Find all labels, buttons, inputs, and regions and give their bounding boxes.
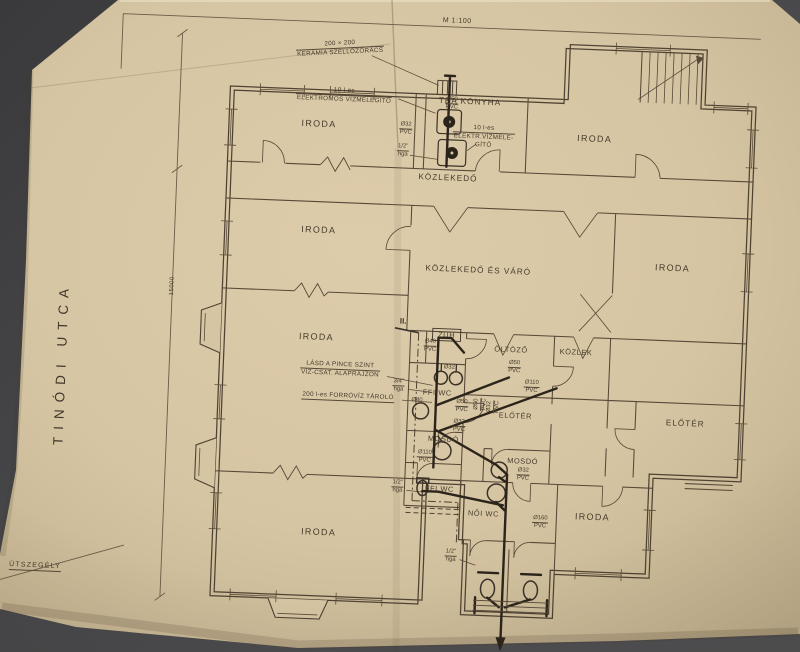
pl-mosdo1-32-material: PVC bbox=[453, 427, 465, 433]
room-iroda-top-right: IRODA bbox=[577, 133, 612, 144]
pl-mosdo2-32-material: PVC bbox=[517, 475, 529, 481]
room-eloter-right: ELŐTÉR bbox=[666, 418, 705, 429]
pl-mosdo1-110-material: PVC bbox=[418, 457, 430, 463]
pl-ffi-50-material: PVC bbox=[455, 407, 467, 413]
room-iroda-bottom-right: IRODA bbox=[575, 511, 610, 522]
pl-wc-hga: 1/2"hga bbox=[444, 548, 457, 564]
ann-forroviz: 200 l-es FORRÓVÍZ TÁROLÓ bbox=[301, 391, 395, 404]
pl-noi-160-material: PVC bbox=[534, 523, 546, 529]
pl-kozlek-110: Ø110PVC bbox=[523, 379, 540, 395]
pl-ffi-50: Ø50PVC bbox=[455, 399, 469, 415]
pl-tarolo-hga: 3/4"hga bbox=[392, 378, 405, 394]
pl-ffi-urinal-32-diameter: Ø32 bbox=[443, 364, 456, 372]
ann-vent: 200 × 200KERÁMIA SZELLŐZŐRÁCS bbox=[296, 38, 385, 59]
ann-lasd: LÁSD A PINCE SZINTVÍZ-CSAT. ALAPRAJZON bbox=[300, 359, 381, 380]
pl-noi-160: Ø160PVC bbox=[532, 515, 549, 531]
pl-ffi2-hga-material: hga bbox=[392, 487, 402, 493]
room-ffi-wc-upper: FFI WC bbox=[423, 387, 452, 397]
pl-tea-32: Ø32PVC bbox=[399, 121, 413, 137]
label-layer: TINÓDI UTCA ÚTSZEGÉLY M 1:100 15000 II. … bbox=[0, 0, 800, 652]
pl-tea-sink-material: PVC bbox=[446, 104, 458, 110]
ann-heater-left: 10 l-esELEKTROMOS VÍZMELEGÍTŐ bbox=[296, 85, 393, 106]
pl-mosdo1-110: Ø110PVC bbox=[416, 449, 433, 465]
pl-ffi-sink-40: Ø40 bbox=[410, 397, 423, 405]
ann-heater-right: 10 l-esELEKTR.VÍZMELE-GÍTŐ bbox=[452, 123, 515, 151]
pl-mosdo1-32: Ø32PVC bbox=[452, 419, 466, 435]
pl-oltozo-50: Ø50PVC bbox=[508, 360, 522, 376]
dimension-label: 15000 bbox=[169, 276, 176, 295]
room-kozlekedo: KÖZLEKEDŐ bbox=[418, 172, 477, 183]
room-mosdo-1: MOSDÓ bbox=[428, 434, 459, 444]
room-iroda-top-left: IRODA bbox=[301, 118, 336, 129]
pl-tea-sink: Ø50PVC bbox=[445, 96, 459, 112]
room-iroda-mid-left: IRODA bbox=[301, 224, 336, 235]
pl-ffi2-hga: 1/2"hga bbox=[391, 479, 404, 495]
drawing-rotor: TINÓDI UTCA ÚTSZEGÉLY M 1:100 15000 II. … bbox=[0, 0, 800, 652]
pl-tea-hga-material: hga bbox=[398, 151, 408, 157]
pl-ffi-urinal-32: Ø32 bbox=[443, 364, 456, 372]
room-mosdo-2: MOSDÓ bbox=[507, 456, 538, 466]
room-kozlekedo-es-varo: KÖZLEKEDŐ ÉS VÁRÓ bbox=[425, 263, 531, 276]
room-iroda-mid-right: IRODA bbox=[655, 262, 690, 273]
room-kozlek: KÖZLEK bbox=[560, 347, 593, 357]
blueprint-photo: TINÓDI UTCA ÚTSZEGÉLY M 1:100 15000 II. … bbox=[0, 0, 800, 652]
pl-tea-32-material: PVC bbox=[400, 129, 412, 135]
pl-ffi-vert-32-material: PVC bbox=[494, 401, 500, 413]
room-eloter-middle: ELŐTÉR bbox=[499, 411, 533, 421]
curb-label: ÚTSZEGÉLY bbox=[9, 561, 61, 572]
room-iroda-bottom-left: IRODA bbox=[301, 526, 336, 537]
ann-lasd-line-2: VÍZ-CSAT. ALAPRAJZON bbox=[300, 369, 380, 380]
ann-forroviz-line-1: 200 l-es FORRÓVÍZ TÁROLÓ bbox=[301, 391, 395, 404]
room-oltozo: ÖLTÖZŐ bbox=[494, 344, 528, 354]
pl-ffi-sink-40-diameter: Ø40 bbox=[410, 397, 423, 405]
street-name-label: TINÓDI UTCA bbox=[50, 282, 72, 446]
scale-note-label: M 1:100 bbox=[443, 17, 472, 25]
section-marker-label: II. bbox=[400, 317, 407, 326]
room-zuh: ZUH bbox=[438, 330, 455, 340]
pl-zuh-40: Ø40PVC bbox=[423, 338, 437, 354]
room-ffi-wc-lower: FFI WC bbox=[425, 484, 454, 494]
pl-oltozo-50-material: PVC bbox=[508, 368, 520, 374]
pl-ffi-vert-32: Ø32PVC bbox=[486, 400, 502, 414]
pl-zuh-40-material: PVC bbox=[424, 347, 436, 353]
pl-mosdo2-32: Ø32PVC bbox=[516, 467, 530, 483]
pl-tea-hga: 1/2"hga bbox=[397, 143, 410, 159]
room-iroda-lower-left: IRODA bbox=[299, 331, 334, 342]
room-noi-wc: NŐI WC bbox=[468, 508, 499, 518]
pl-kozlek-110-material: PVC bbox=[525, 388, 537, 394]
pl-wc-hga-material: hga bbox=[446, 557, 456, 563]
pl-tarolo-hga-material: hga bbox=[393, 386, 403, 392]
